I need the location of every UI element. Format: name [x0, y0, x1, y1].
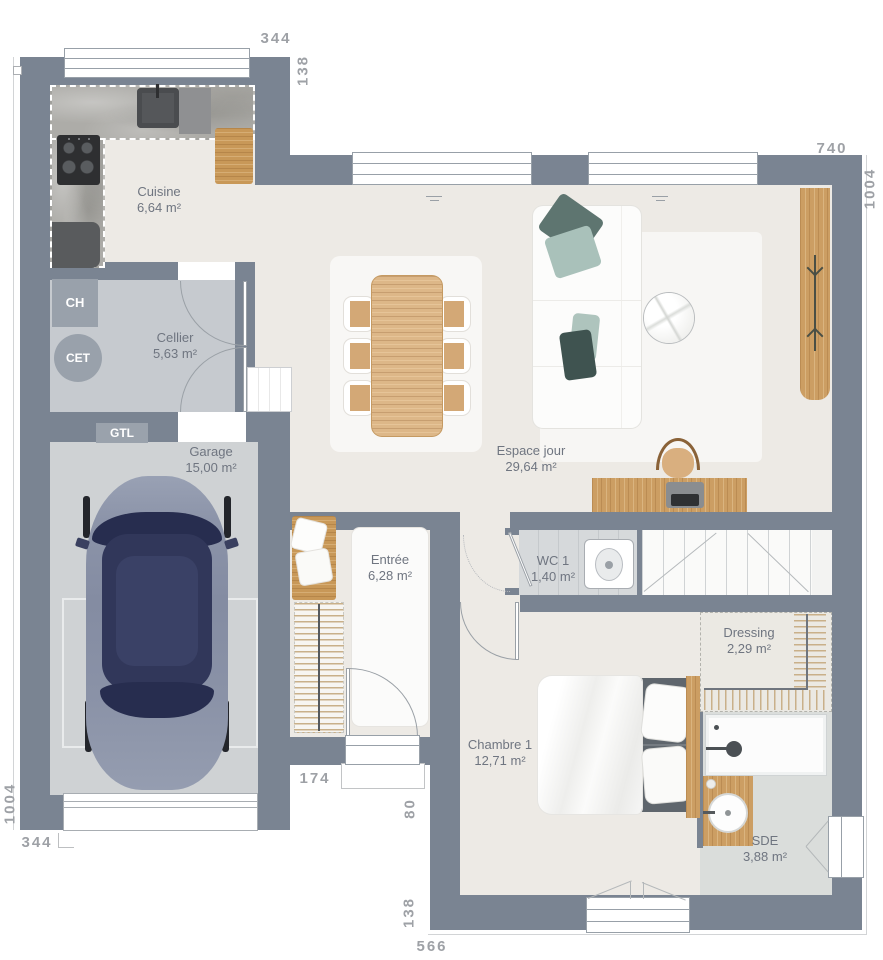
room-area: 2,29 m²	[703, 641, 795, 657]
room-name: Espace jour	[483, 443, 579, 459]
dining-chair	[440, 339, 470, 373]
dining-chair	[440, 297, 470, 331]
desk-chair-seat	[662, 448, 694, 478]
ch-label: CH	[66, 295, 85, 310]
door-leaf	[346, 668, 350, 738]
room-name: WC 1	[508, 553, 598, 569]
gtl-label: GTL	[110, 426, 134, 440]
dim-bottom-offset: 138	[401, 895, 418, 931]
toilet-drain	[605, 561, 613, 569]
gtl-box: GTL	[96, 423, 148, 443]
stove	[57, 135, 100, 185]
bed-duvet	[538, 676, 642, 814]
wall-living-bottom-right	[510, 512, 832, 530]
shower-head	[726, 741, 742, 757]
wall-wc-stairs-divider	[637, 528, 642, 595]
site-line-bottom	[428, 934, 867, 935]
bed-headboard	[686, 676, 700, 818]
floor-plan: CH CET GTL	[0, 0, 883, 960]
room-area: 5,63 m²	[130, 346, 220, 362]
dining-chair	[440, 381, 470, 415]
dim-top-offset: 138	[295, 51, 312, 91]
room-name: SDE	[720, 833, 810, 849]
room-name: Entrée	[345, 552, 435, 568]
sink-drain	[725, 810, 731, 816]
car-rear-window	[100, 682, 214, 718]
wall-garage-right	[258, 412, 290, 795]
room-name: Dressing	[703, 625, 795, 641]
sofa-pillow	[559, 329, 597, 381]
chambre-window	[586, 897, 690, 933]
room-label-espace-jour: Espace jour 29,64 m²	[483, 443, 579, 475]
room-name: Cuisine	[114, 184, 204, 200]
dining-chair	[344, 381, 374, 415]
bench-pillow	[295, 548, 332, 585]
wall-kitchen-right	[255, 85, 290, 185]
dim-entry-width: 174	[293, 770, 337, 787]
garage-door	[63, 793, 258, 831]
chambre-window-swing-line	[643, 882, 644, 899]
dim-right-width: 740	[810, 140, 854, 157]
door-leaf	[515, 602, 519, 660]
window-vent-mark	[652, 196, 670, 202]
dim-left-width: 344	[17, 834, 57, 851]
kitchen-appliance	[52, 222, 100, 268]
dressing-hanging-clothes	[794, 614, 826, 690]
bed-pillow	[642, 746, 691, 804]
site-line-right	[866, 155, 867, 934]
step-block	[247, 367, 292, 412]
stairs	[642, 528, 812, 595]
room-area: 29,64 m²	[483, 459, 579, 475]
window-vent-mark	[426, 196, 444, 202]
room-label-garage: Garage 15,00 m²	[166, 444, 256, 476]
laptop-screen	[671, 494, 699, 506]
room-label-entree: Entrée 6,28 m²	[345, 552, 435, 584]
room-area: 1,40 m²	[508, 569, 598, 585]
living-window-left	[352, 152, 532, 185]
room-label-dressing: Dressing 2,29 m²	[703, 625, 795, 657]
car-wheel	[83, 496, 90, 538]
room-label-chambre: Chambre 1 12,71 m²	[452, 737, 548, 769]
door-leaf	[243, 347, 247, 412]
room-label-sde: SDE 3,88 m²	[720, 833, 810, 865]
wall-left	[20, 57, 50, 830]
soap-dish	[706, 779, 716, 789]
room-area: 3,88 m²	[720, 849, 810, 865]
dining-chair	[344, 339, 374, 373]
stairs-landing	[812, 528, 832, 595]
dining-table	[372, 276, 442, 436]
front-door	[345, 735, 420, 765]
coffee-table	[644, 293, 694, 343]
corner-marker	[58, 833, 74, 848]
drain-board	[179, 88, 211, 134]
car-roof-panel	[116, 556, 198, 666]
bed-pillow	[641, 684, 691, 743]
wall-right	[832, 155, 862, 930]
dim-top-width: 344	[256, 30, 296, 47]
dim-right-height: 1004	[862, 165, 879, 213]
room-name: Garage	[166, 444, 256, 460]
room-label-wc: WC 1 1,40 m²	[508, 553, 598, 585]
dressing-rail	[704, 688, 808, 690]
living-window-right	[588, 152, 758, 185]
kitchen-window	[64, 48, 250, 78]
sink-faucet	[703, 811, 715, 814]
shower	[705, 714, 827, 776]
sde-window	[828, 816, 864, 878]
shower-valve	[714, 725, 719, 730]
room-area: 6,64 m²	[114, 200, 204, 216]
room-name: Cellier	[130, 330, 220, 346]
chambre-window-swing-line	[630, 882, 631, 899]
room-name: Chambre 1	[452, 737, 548, 753]
wardrobe-rail	[318, 604, 320, 731]
dim-left-height: 1004	[2, 781, 19, 827]
car-wheel	[224, 496, 231, 538]
porch-step	[341, 763, 425, 789]
wall-hall-bottom	[520, 595, 832, 612]
room-label-cuisine: Cuisine 6,64 m²	[114, 184, 204, 216]
room-label-cellier: Cellier 5,63 m²	[130, 330, 220, 362]
dim-bottom-width: 566	[410, 938, 454, 955]
dressing-rail	[806, 614, 808, 690]
room-area: 12,71 m²	[452, 753, 548, 769]
dim-porch-depth: 80	[402, 791, 419, 827]
room-area: 6,28 m²	[345, 568, 435, 584]
dressing-hanging-clothes	[704, 690, 826, 710]
room-area: 15,00 m²	[166, 460, 256, 476]
door-leaf	[243, 281, 247, 346]
cet-tank: CET	[54, 334, 102, 382]
cutting-board	[215, 128, 253, 184]
site-line-left	[13, 57, 14, 830]
corner-marker	[13, 66, 22, 75]
water-heater-box: CH	[52, 279, 98, 327]
car	[86, 476, 228, 790]
sink-faucet	[156, 84, 159, 98]
dining-chair	[344, 297, 374, 331]
cet-label: CET	[66, 351, 90, 365]
